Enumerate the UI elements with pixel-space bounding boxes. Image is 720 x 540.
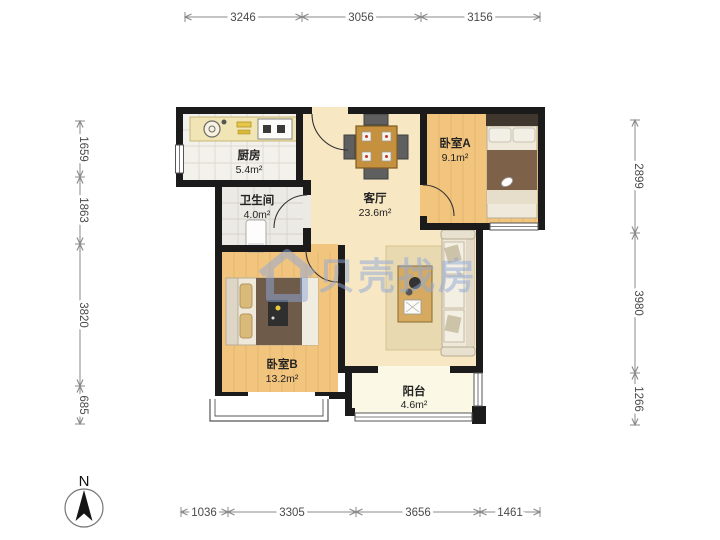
- floorplan-page: 厨房 5.4m² 卫生间 4.0m² 客厅 23.6m² 卧室A 9.1m² 卧…: [0, 0, 720, 540]
- kitchen-window: [176, 145, 184, 173]
- compass-needle-icon: [76, 490, 93, 521]
- watermark-text: 贝壳找房: [318, 256, 478, 297]
- bedroom-a-window: [490, 223, 538, 230]
- balcony-label: 阳台: [403, 384, 426, 398]
- dim-bottom-2: 3305: [279, 507, 305, 519]
- balcony-bottom-window: [355, 413, 472, 421]
- bedroom-b-label: 卧室B: [266, 357, 297, 371]
- living-room-area: 23.6m²: [359, 207, 392, 219]
- floorplan-image: 厨房 5.4m² 卫生间 4.0m² 客厅 23.6m² 卧室A 9.1m² 卧…: [0, 0, 720, 540]
- dim-top-1: 3246: [230, 12, 256, 24]
- compass-north-label: N: [79, 473, 90, 490]
- tv-icon: [268, 300, 288, 326]
- dim-top-2: 3056: [348, 12, 374, 24]
- kitchen-label: 厨房: [238, 148, 261, 162]
- dim-right-2: 3980: [632, 290, 644, 316]
- dim-left-1: 1659: [77, 136, 89, 162]
- bathroom-threshold: [303, 195, 311, 228]
- kitchen-area: 5.4m²: [236, 164, 263, 176]
- living-room-label: 客厅: [363, 191, 387, 205]
- bedroom-a-area: 9.1m²: [442, 152, 469, 164]
- dim-left-4: 685: [77, 395, 89, 414]
- compass: N: [65, 473, 103, 527]
- entry-threshold: [312, 107, 348, 115]
- dim-top-3: 3156: [467, 12, 493, 24]
- balcony-threshold: [378, 366, 450, 374]
- dim-left-3: 3820: [77, 302, 89, 328]
- dim-bottom-3: 3656: [405, 507, 431, 519]
- bedroom-b-area: 13.2m²: [266, 373, 299, 385]
- sink-icon: [204, 121, 220, 137]
- bathroom-area: 4.0m²: [244, 209, 271, 221]
- bedroom-a-label: 卧室A: [439, 136, 470, 150]
- dim-left-2: 1863: [77, 197, 89, 223]
- bed-a: [486, 114, 538, 218]
- balcony-area: 4.6m²: [401, 399, 428, 411]
- dim-right-3: 1266: [632, 386, 644, 412]
- bathroom-label: 卫生间: [240, 193, 275, 207]
- dim-bottom-1: 1036: [191, 507, 217, 519]
- kitchen-counter: [190, 117, 298, 141]
- bedroom-a-threshold: [420, 185, 427, 216]
- balcony-right-window: [474, 373, 482, 406]
- bay-window: [209, 396, 329, 422]
- dim-bottom-4: 1461: [497, 507, 523, 519]
- dim-right-1: 2899: [632, 163, 644, 189]
